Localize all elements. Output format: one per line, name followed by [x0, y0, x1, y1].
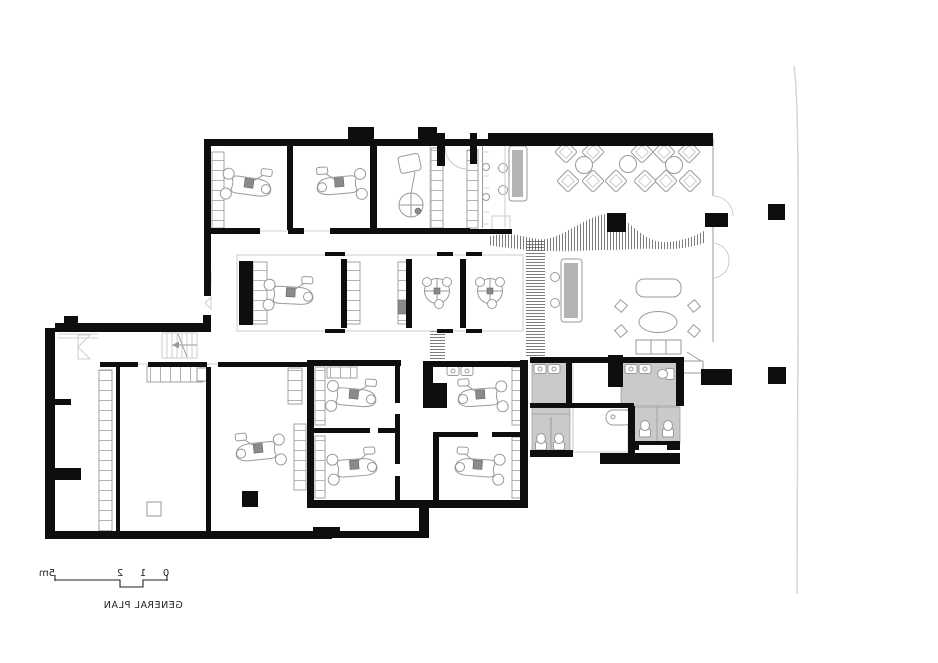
round-table-icon — [666, 157, 683, 174]
round-treatment-unit-icon — [423, 278, 452, 309]
dental-chair-icon — [457, 376, 509, 415]
round-table-icon — [620, 156, 637, 173]
cabinet — [346, 262, 360, 324]
stool-icon — [499, 164, 508, 173]
sofa-icon — [636, 340, 681, 354]
xray-unit-icon — [398, 153, 423, 217]
cabinet — [288, 368, 302, 404]
cabinet — [327, 367, 357, 378]
dental-chair-icon — [220, 163, 274, 205]
scale-bar — [55, 575, 167, 587]
sink-icon — [447, 367, 459, 376]
walkway-vertical — [526, 240, 545, 357]
central-treatment-strip — [237, 255, 523, 331]
stool-icon — [551, 273, 560, 282]
floor-plan-drawing: 0 1 2 5m GENERAL PLAN — [0, 0, 938, 663]
structural-column — [768, 204, 785, 220]
dental-chair-icon — [234, 429, 287, 469]
wavy-partition — [488, 214, 704, 251]
dental-chair-icon — [454, 447, 506, 486]
chair-icon — [688, 300, 701, 313]
cabinet — [147, 366, 203, 382]
cabinet — [315, 367, 325, 425]
cabinet — [253, 262, 267, 324]
chair-icon — [615, 300, 628, 313]
double-door-icon — [712, 243, 729, 278]
plan-title: GENERAL PLAN — [103, 600, 183, 611]
chair-icon — [688, 325, 701, 338]
cabinet — [294, 424, 306, 490]
stool-icon — [499, 186, 508, 195]
scale-label-5m: 5m — [39, 568, 55, 579]
waiting-area — [482, 141, 701, 228]
sink-icon — [534, 365, 546, 374]
waiting-chair-icon — [679, 170, 702, 193]
door-swing-icon — [445, 147, 467, 169]
sink-icon — [639, 365, 651, 374]
waiting-chair-icon — [605, 170, 628, 193]
sink-icon — [461, 367, 473, 376]
stool-icon — [551, 299, 560, 308]
sink-icon — [548, 365, 560, 374]
chair-icon — [615, 325, 628, 338]
cabinet — [315, 436, 325, 498]
rug — [636, 279, 681, 297]
toilet-icon — [554, 434, 565, 451]
dental-chair-icon — [325, 376, 377, 416]
cabinet — [99, 370, 112, 535]
dental-chair-icon — [263, 274, 314, 312]
dental-chair-icon — [326, 447, 378, 486]
entry-door-icon — [78, 335, 90, 359]
scale-label-2: 2 — [117, 568, 123, 579]
structural-column — [768, 367, 786, 384]
scale-label-1: 1 — [140, 568, 146, 579]
toilet-icon — [663, 421, 674, 438]
scale-label-0: 0 — [163, 568, 169, 579]
walkway-corridor — [430, 331, 445, 362]
stairs — [162, 333, 197, 358]
dental-chair-icon — [315, 164, 367, 204]
toilet-icon — [658, 369, 675, 380]
walls — [45, 127, 732, 539]
waiting-chair-icon — [634, 170, 657, 193]
toilet-icon — [640, 421, 651, 438]
round-treatment-unit-icon — [476, 278, 505, 309]
waiting-chair-icon — [557, 170, 580, 193]
sink-icon — [625, 365, 637, 374]
title-block: 0 1 2 5m GENERAL PLAN — [39, 568, 183, 611]
toilet-icon — [536, 434, 547, 451]
round-table-icon — [576, 157, 593, 174]
page-fold-line — [794, 66, 798, 594]
oval-table-icon — [639, 312, 677, 333]
floor-plan-page: 0 1 2 5m GENERAL PLAN — [0, 0, 938, 663]
